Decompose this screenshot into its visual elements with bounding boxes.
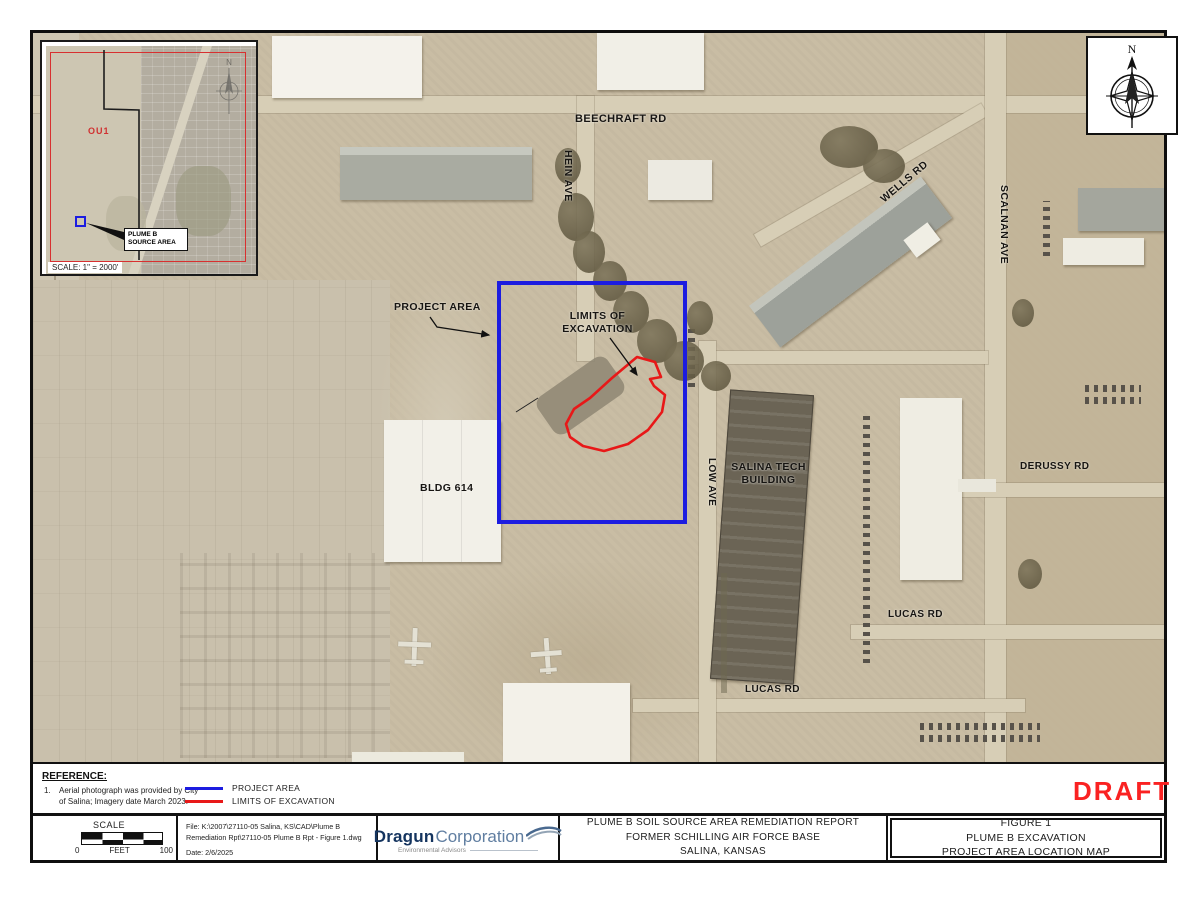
project-area-leader — [430, 317, 489, 335]
label-lucas-rd-south: LUCAS RD — [745, 684, 800, 695]
label-project-area: PROJECT AREA — [394, 301, 481, 313]
reference-line1: Aerial photograph was provided by City — [59, 786, 198, 795]
scale-zero: 0 — [75, 846, 79, 855]
draft-watermark: DRAFT — [1073, 776, 1171, 807]
north-arrow: N — [1086, 36, 1178, 135]
project-title-line1: PLUME B SOIL SOURCE AREA REMEDIATION REP… — [560, 816, 886, 831]
reference-line2: of Salina; Imagery date March 2023. — [59, 797, 188, 806]
logo-name-bold: Dragun — [374, 827, 435, 847]
project-title-line2: FORMER SCHILLING AIR FORCE BASE — [560, 831, 886, 846]
legend-project-area-swatch — [185, 787, 223, 790]
figure-title-cell: FIGURE 1 PLUME B EXCAVATION PROJECT AREA… — [888, 816, 1164, 860]
scale-cell: SCALE 0 FEET 100 — [33, 816, 178, 860]
logo-tagline: Environmental Advisors — [398, 847, 466, 854]
legend-limits-label: LIMITS OF EXCAVATION — [232, 796, 335, 806]
label-bldg-614: BLDG 614 — [420, 482, 473, 494]
file-path-line2: Remediation Rpt\27110-05 Plume B Rpt - F… — [186, 833, 368, 844]
reference-row: REFERENCE: 1. Aerial photograph was prov… — [33, 766, 1164, 813]
scale-bar — [81, 832, 163, 845]
logo-rule — [470, 850, 538, 851]
company-logo: Dragun Corporation — [374, 822, 563, 847]
inset-map: OU1 PLUME B SOURCE AREA SCALE: 1" = 2000… — [40, 40, 258, 276]
inset-north-arrow: N — [212, 56, 246, 118]
logo-tagline-row: Environmental Advisors — [398, 847, 538, 854]
small-annotation-leader — [516, 398, 538, 412]
label-scalnan-ave: SCALNAN AVE — [998, 185, 1010, 293]
label-salina-tech-building: SALINA TECH BUILDING — [701, 461, 836, 487]
figure-page: BEECHRAFT RD HEIN AVE WELLS RD SCALNAN A… — [0, 0, 1200, 900]
project-title-line3: SALINA, KANSAS — [560, 845, 886, 860]
label-beechcraft-rd: BEECHRAFT RD — [575, 113, 667, 125]
label-salina-tech-line2: BUILDING — [742, 474, 796, 486]
inset-callout-label: PLUME B SOURCE AREA — [124, 228, 188, 251]
scale-units: FEET — [109, 846, 129, 855]
label-salina-tech-line1: SALINA TECH — [731, 461, 806, 473]
north-letter: N — [1128, 42, 1137, 56]
inset-callout-line1: PLUME B — [128, 231, 157, 238]
inset-scale-note: SCALE: 1" = 2000' — [48, 262, 122, 273]
drawing-border: BEECHRAFT RD HEIN AVE WELLS RD SCALNAN A… — [30, 30, 1167, 863]
figure-subtitle: PLUME B EXCAVATION — [892, 831, 1160, 846]
inset-north-letter: N — [226, 58, 232, 67]
label-derussy-rd: DERUSSY RD — [1020, 461, 1089, 472]
scale-max: 100 — [160, 846, 173, 855]
label-limits-of-excavation: LIMITS OF EXCAVATION — [545, 310, 650, 336]
scale-label: SCALE — [93, 820, 176, 830]
label-lucas-rd-east: LUCAS RD — [888, 609, 943, 620]
legend-project-area-label: PROJECT AREA — [232, 783, 300, 793]
logo-cell: Dragun Corporation Environmental Advisor… — [378, 816, 560, 860]
reference-item-number: 1. — [44, 786, 51, 795]
reference-heading: REFERENCE: — [42, 771, 107, 782]
limits-of-excavation-outline — [566, 357, 665, 451]
inset-callout-line2: SOURCE AREA — [128, 239, 176, 246]
file-info-cell: File: K:\2007\27110-05 Salina, KS\CAD\Pl… — [178, 816, 378, 860]
file-path-line1: File: K:\2007\27110-05 Salina, KS\CAD\Pl… — [186, 822, 368, 833]
label-limits-line1: LIMITS OF — [570, 310, 626, 322]
file-date: Date: 2/6/2025 — [186, 848, 368, 859]
legend-limits-swatch — [185, 800, 223, 803]
figure-map-title: PROJECT AREA LOCATION MAP — [892, 845, 1160, 860]
scale-numbers: 0 FEET 100 — [75, 846, 173, 855]
title-block: SCALE 0 FEET 100 File: K:\2007\27110-05 … — [33, 813, 1164, 860]
figure-number: FIGURE 1 — [892, 816, 1160, 831]
label-hein-ave: HEIN AVE — [562, 150, 574, 222]
figure-title-box: FIGURE 1 PLUME B EXCAVATION PROJECT AREA… — [890, 818, 1162, 858]
logo-swoosh-icon — [526, 822, 562, 842]
project-title-cell: PLUME B SOIL SOURCE AREA REMEDIATION REP… — [560, 816, 888, 860]
label-limits-line2: EXCAVATION — [562, 323, 633, 335]
logo-name-light: Corporation — [435, 827, 524, 847]
